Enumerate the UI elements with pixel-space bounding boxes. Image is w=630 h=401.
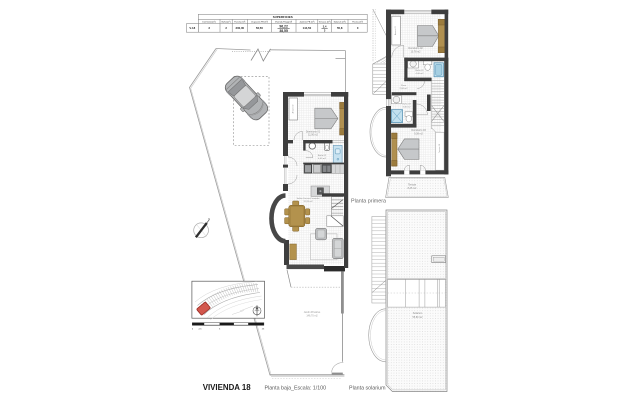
svg-text:Paso: Paso — [401, 85, 407, 87]
svg-text:9,38 m2: 9,38 m2 — [414, 132, 423, 135]
svg-text:Salón-Cocina-Comedor: Salón-Cocina-Comedor — [297, 197, 320, 200]
svg-text:Piscina (m²): Piscina (m²) — [352, 20, 363, 23]
svg-text:Jardín Privativo: Jardín Privativo — [304, 311, 321, 314]
svg-text:55,8: 55,8 — [337, 26, 343, 30]
svg-text:Jardines PB (m²): Jardines PB (m²) — [299, 20, 314, 23]
svg-text:144,50: 144,50 — [303, 26, 312, 30]
svg-text:Terraza 10: Terraza 10 — [438, 144, 441, 153]
svg-text:Solarium: Solarium — [413, 312, 422, 315]
svg-text:Terraza: Terraza — [408, 184, 417, 187]
svg-text:Baño 02: Baño 02 — [318, 154, 327, 157]
svg-text:Planta baja_Escala: 1/100: Planta baja_Escala: 1/100 — [265, 385, 327, 391]
svg-text:Planta primera: Planta primera — [351, 198, 386, 204]
svg-text:146,70 m2: 146,70 m2 — [306, 315, 318, 318]
svg-text:10,78 m2: 10,78 m2 — [411, 50, 422, 53]
svg-text:Baño 01: Baño 01 — [415, 69, 424, 72]
svg-text:4,06 m2: 4,06 m2 — [416, 73, 425, 75]
svg-text:2,84 m2: 2,84 m2 — [400, 88, 409, 90]
svg-text:Vivienda P.baja(m²): Vivienda P.baja(m²) — [275, 20, 293, 23]
svg-text:SUPERFICIES: SUPERFICIES — [273, 15, 293, 19]
svg-text:55,80 m2: 55,80 m2 — [413, 316, 424, 319]
svg-text:38,55: 38,55 — [279, 29, 288, 33]
svg-text:Terrazas (m²): Terrazas (m²) — [319, 20, 331, 23]
svg-text:56,50: 56,50 — [256, 26, 263, 30]
svg-text:N: N — [208, 217, 210, 221]
svg-text:Dormitorios(nº): Dormitorios(nº) — [202, 20, 216, 23]
svg-text:Armario 01: Armario 01 — [394, 26, 397, 35]
svg-text:VIVIENDA 18: VIVIENDA 18 — [203, 383, 252, 392]
svg-text:Baños(nº): Baños(nº) — [222, 20, 231, 23]
svg-text:Baño 03: Baño 03 — [402, 103, 411, 106]
svg-text:Parcela (m²): Parcela (m²) — [234, 20, 245, 23]
svg-text:Armario 02: Armario 02 — [292, 105, 295, 114]
svg-text:4,05 m2: 4,05 m2 — [318, 158, 327, 160]
svg-text:8,45 m2: 8,45 m2 — [408, 187, 417, 190]
svg-text:11,90 m2: 11,90 m2 — [308, 134, 318, 137]
svg-text:Ocupación PB (m²): Ocupación PB (m²) — [251, 20, 268, 23]
svg-text:Planta solarium: Planta solarium — [349, 385, 386, 391]
svg-text:3,4: 3,4 — [323, 24, 327, 28]
svg-text:3,30 m2: 3,30 m2 — [403, 107, 412, 109]
svg-text:V-18: V-18 — [189, 26, 195, 30]
svg-text:Solarium (m²): Solarium (m²) — [334, 20, 346, 23]
svg-text:300,00: 300,00 — [236, 26, 245, 30]
svg-text:31,20 m2: 31,20 m2 — [303, 201, 313, 203]
